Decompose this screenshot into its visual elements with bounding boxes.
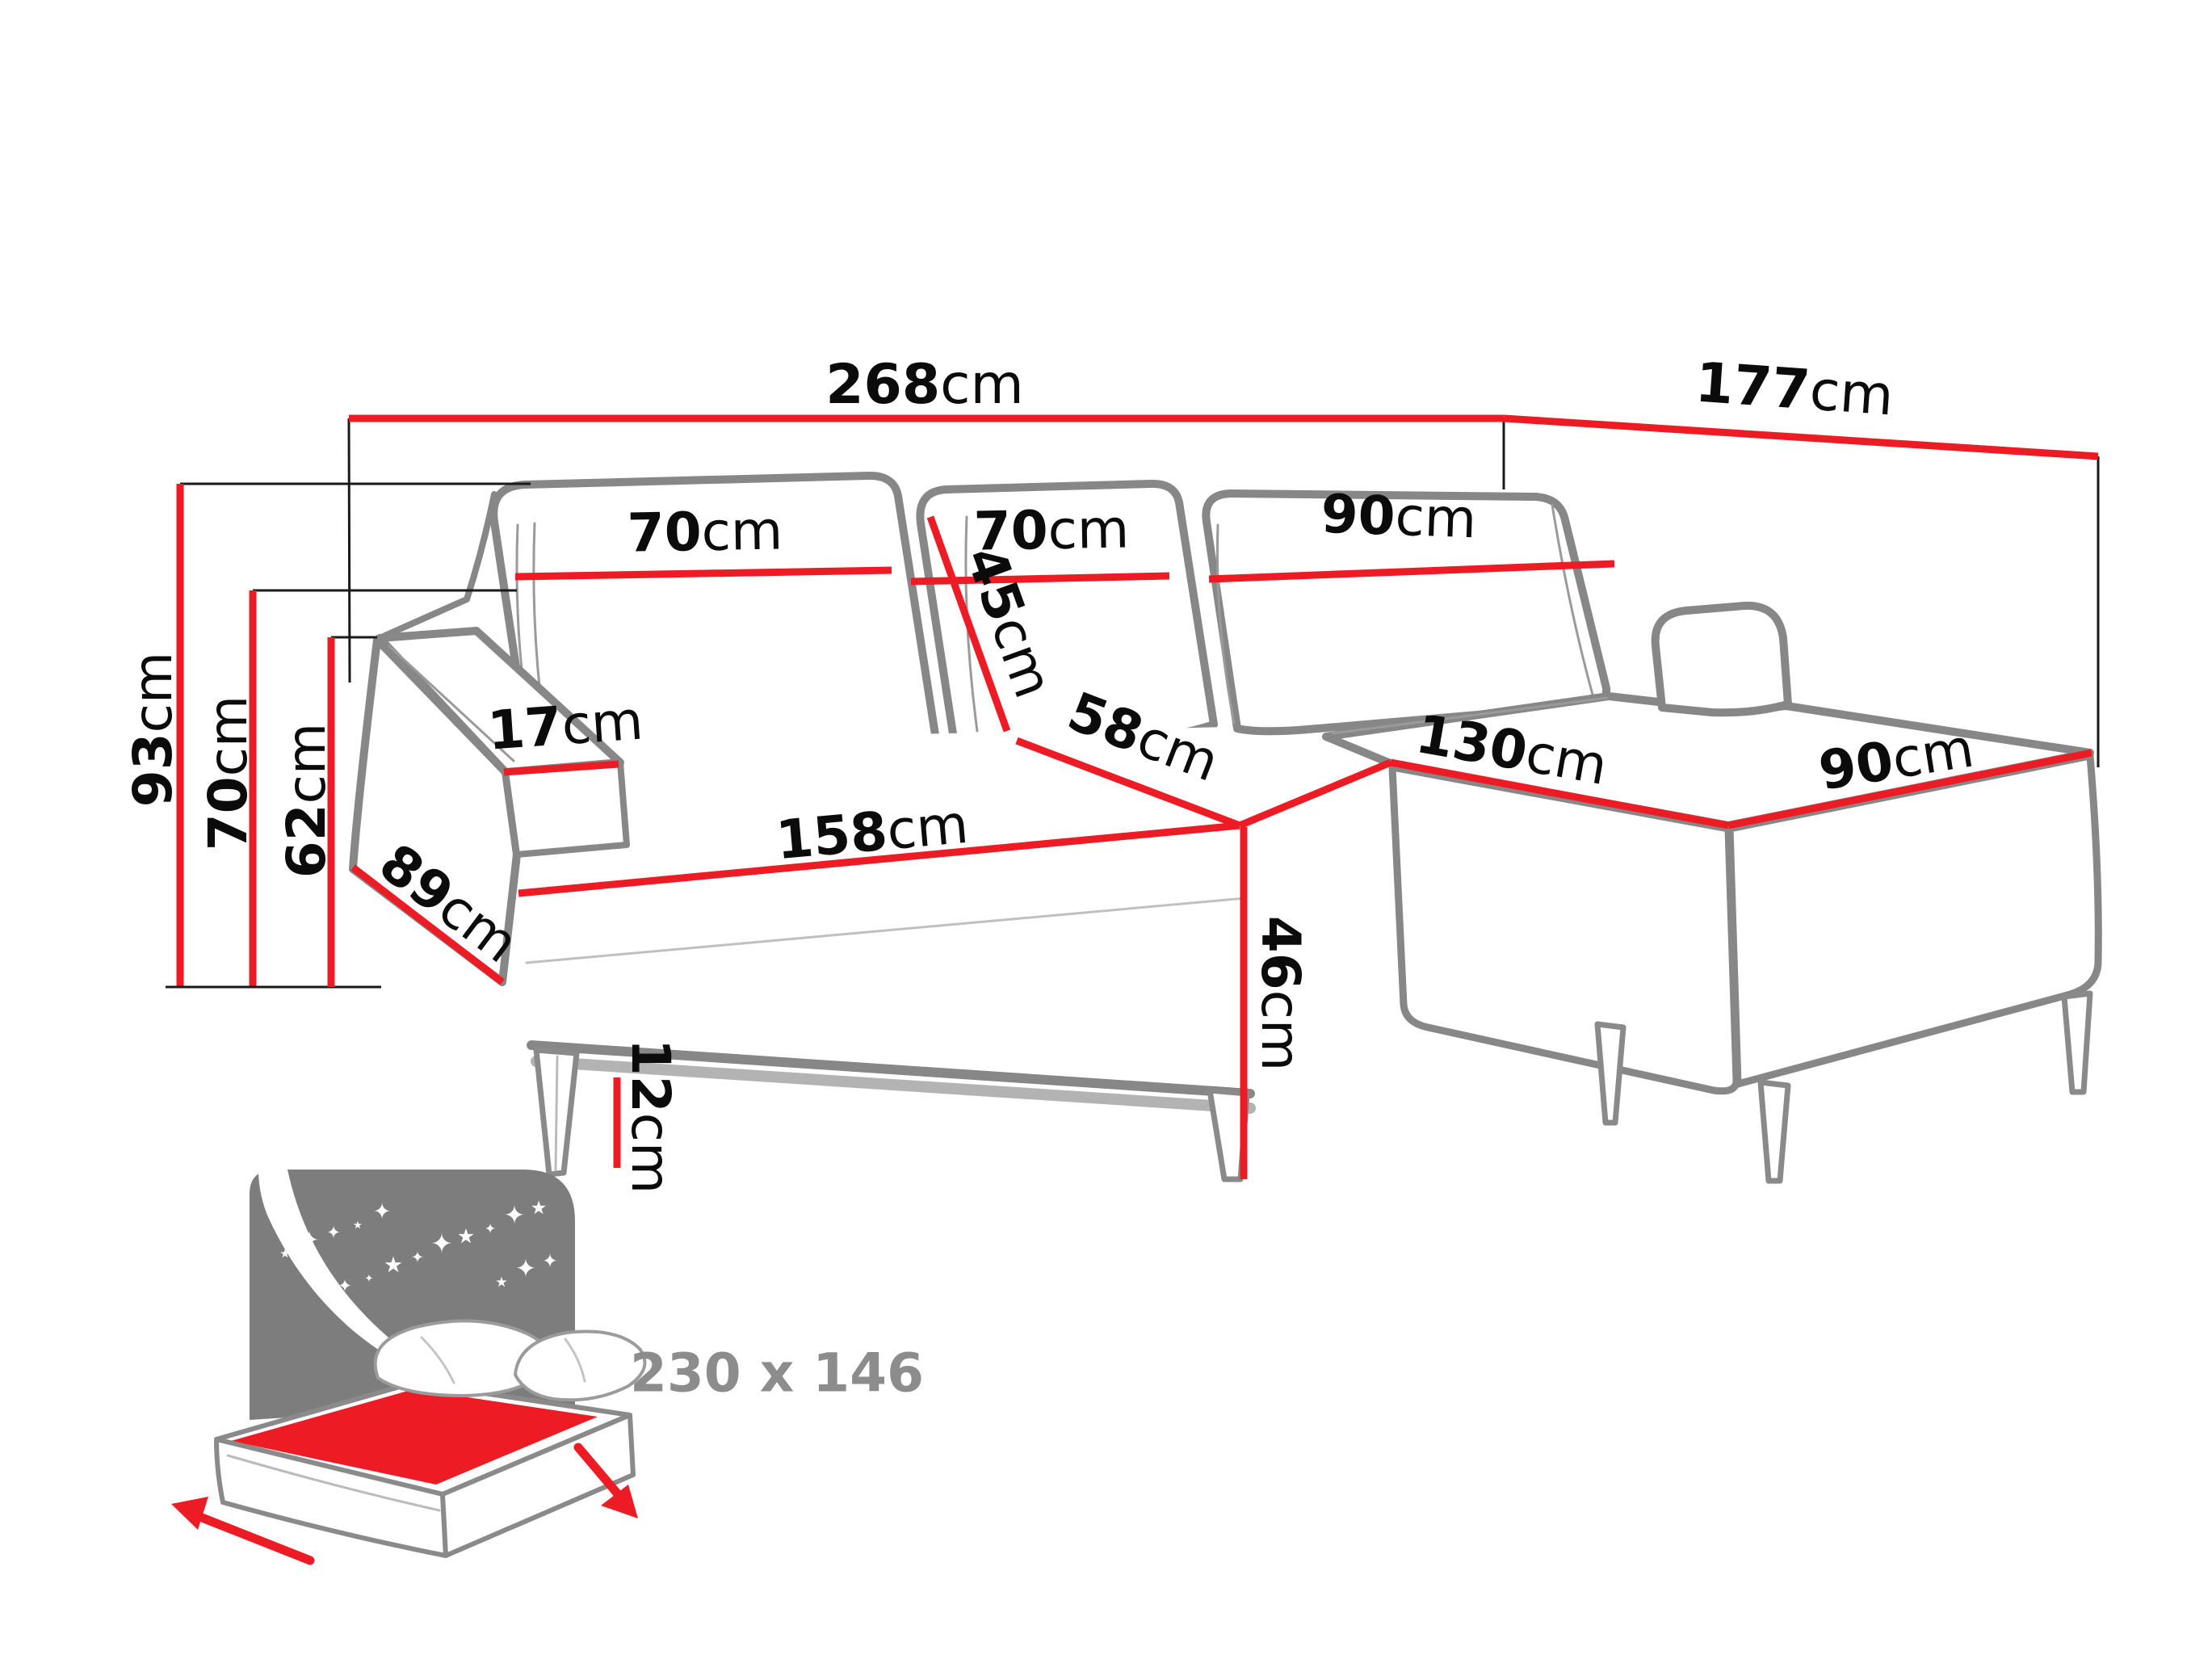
- dimension-seat-height-46cm: 46cm: [1244, 827, 1312, 1179]
- svg-text:✦: ✦: [326, 1223, 341, 1242]
- dimension-label: 70cm: [627, 499, 783, 564]
- svg-text:✦: ✦: [411, 1249, 424, 1266]
- svg-text:✦: ✦: [300, 1226, 319, 1254]
- sofa-dimension-diagram: 268cm177cm93cm70cm62cm70cm70cm90cm45cm58…: [0, 0, 2212, 1659]
- svg-text:✦: ✦: [365, 1273, 374, 1285]
- bed-size-label: 230 x 146: [630, 1342, 924, 1405]
- dimension-label: 70cm: [197, 695, 259, 850]
- sofa-dimension-diagram-page: 268cm177cm93cm70cm62cm70cm70cm90cm45cm58…: [0, 0, 2212, 1659]
- svg-text:★: ★: [353, 1220, 363, 1232]
- dimension-leg-height-12cm: 12cm: [617, 1039, 682, 1194]
- dimension-label: 268cm: [825, 353, 1024, 417]
- svg-text:★: ★: [262, 1170, 271, 1182]
- svg-text:★: ★: [531, 1198, 548, 1219]
- leg: [1761, 1082, 1788, 1181]
- svg-text:✦: ✦: [485, 1221, 496, 1237]
- dimension-label: 62cm: [275, 723, 338, 878]
- svg-text:✦: ✦: [373, 1199, 392, 1224]
- svg-text:✦: ✦: [542, 1251, 557, 1272]
- dimension-label: 46cm: [1250, 916, 1312, 1071]
- svg-text:★: ★: [457, 1224, 475, 1248]
- dimension-label: 90cm: [1320, 482, 1477, 550]
- svg-text:★: ★: [495, 1275, 507, 1291]
- sofa-back-frame: [380, 494, 494, 638]
- dimension-label: 12cm: [620, 1039, 682, 1194]
- armrest-front: [506, 762, 627, 855]
- leg: [1597, 1024, 1623, 1123]
- dimension-label: 17cm: [485, 689, 644, 762]
- dimension-label: 177cm: [1694, 351, 1896, 428]
- leg: [2064, 993, 2090, 1092]
- svg-text:★: ★: [279, 1246, 290, 1261]
- sleeping-function-icon: ★✦✦★✦★✦★✦✦✦✦★✦★✦★✦✦★✦★✦✦✦✦★: [171, 1170, 644, 1560]
- svg-text:★: ★: [384, 1253, 403, 1278]
- svg-text:✦: ✦: [515, 1254, 536, 1283]
- chaise-bolster: [1656, 606, 1788, 712]
- svg-text:✦: ✦: [430, 1228, 453, 1259]
- svg-text:✦: ✦: [504, 1201, 525, 1230]
- svg-text:✦: ✦: [338, 1276, 352, 1296]
- dimension-label: 93cm: [122, 652, 184, 807]
